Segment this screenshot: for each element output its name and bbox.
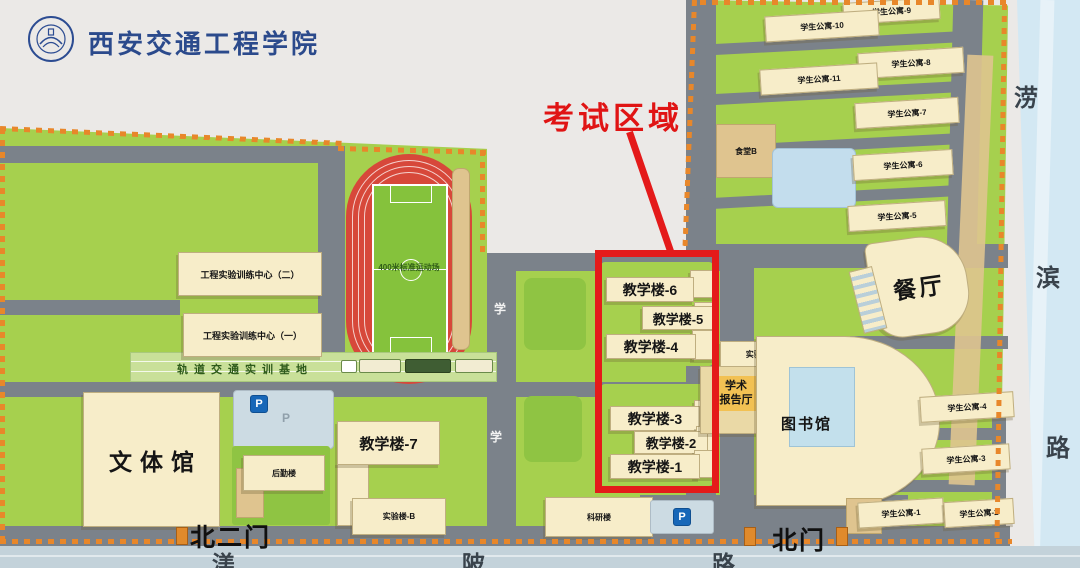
gate-marker-icon	[744, 527, 756, 546]
exam-area-box	[595, 250, 719, 493]
lecture-hall-label: 学术 报告厅	[712, 376, 760, 411]
rail-base-label: 轨道交通实训基地	[177, 361, 313, 377]
south-road-char-2: 陂	[462, 545, 485, 568]
center-parking-lot: P	[650, 500, 714, 534]
sports-hall-label: 文体馆	[101, 443, 202, 477]
canteen-b-label: 食堂B	[735, 146, 757, 157]
green-patch	[524, 396, 582, 462]
research-label: 科研楼	[587, 512, 611, 523]
train-car-icon	[359, 359, 401, 373]
teaching-7-label: 教学楼-7	[359, 433, 417, 454]
parking-icon: P	[673, 508, 691, 526]
pool	[772, 148, 856, 208]
east-road-char-3: 路	[1046, 428, 1070, 463]
south-road-char-3: 路	[712, 545, 735, 568]
exam-area-pointer-line	[626, 131, 674, 252]
library-glass-roof	[789, 367, 855, 447]
apartment-2: 学生公寓-2	[943, 498, 1014, 528]
school-name: 西安交通工程学院	[88, 24, 320, 61]
campus-road-char: 学	[494, 300, 506, 317]
grandstand	[452, 168, 470, 350]
boundary-west	[0, 128, 5, 540]
train-car-icon	[341, 360, 357, 373]
exam-area-title: 考试区域	[543, 93, 683, 138]
boundary-south	[0, 539, 1012, 544]
boundary-track-east	[480, 150, 485, 258]
north-gate-2-label: 北二门	[190, 518, 271, 554]
boundary-north	[700, 0, 1008, 5]
parking-icon: P	[250, 395, 268, 413]
south-road-meibei	[0, 546, 1080, 568]
campus-map: 400米标准运动场 轨道交通实训基地 工程实验训练中心（二） 工程实验训练中心（…	[0, 0, 1080, 568]
logistics-building: 后勤楼	[243, 455, 325, 491]
library-building: 图书馆	[756, 336, 940, 506]
logistics-label: 后勤楼	[272, 468, 296, 479]
dining-hall-label: 餐厅	[891, 266, 947, 307]
top-left-road	[0, 146, 345, 163]
lab-building-b: 实验楼-B	[352, 498, 446, 535]
gate-marker-icon	[836, 527, 848, 546]
research-building: 科研楼	[545, 497, 653, 537]
green-patch	[524, 278, 586, 350]
train-car-icon	[405, 359, 451, 373]
training-center-2: 工程实验训练中心（二）	[178, 252, 322, 296]
parking-ground-mark: P	[282, 411, 290, 425]
sports-hall: 文体馆	[83, 392, 220, 527]
teaching-7: 教学楼-7	[337, 421, 440, 465]
school-logo-icon	[28, 16, 74, 62]
training-center-1-label: 工程实验训练中心（一）	[203, 329, 302, 342]
apartment-1: 学生公寓-1	[857, 497, 944, 528]
central-vertical-road	[487, 253, 516, 546]
east-road-char-1: 涝	[1014, 78, 1038, 113]
north-gate-label: 北门	[772, 521, 826, 557]
east-road-char-2: 滨	[1036, 258, 1060, 293]
gate-marker-icon	[176, 527, 188, 545]
training-center-1: 工程实验训练中心（一）	[183, 313, 322, 357]
training-center-2-label: 工程实验训练中心（二）	[200, 268, 299, 281]
library-label: 图书馆	[781, 413, 832, 434]
mid-left-road	[0, 300, 180, 315]
west-parking-lot: P P	[233, 390, 334, 449]
campus-road-char: 学	[490, 428, 502, 445]
lab-b-label: 实验楼-B	[383, 511, 415, 522]
canteen-b-building: 食堂B	[716, 124, 776, 178]
train-car-icon	[455, 359, 493, 373]
